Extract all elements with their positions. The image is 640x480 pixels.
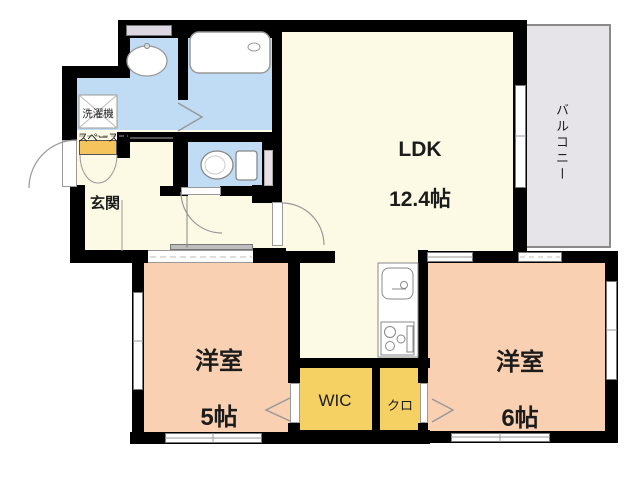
wall-top-ldk	[276, 20, 527, 32]
wall-toilet-bottom-left	[160, 186, 182, 196]
room5-sliding-door-opening	[148, 250, 253, 263]
laundry-space-label: 洗濯機 スペース	[72, 96, 124, 156]
room6-top-window-1	[427, 252, 473, 262]
bedroom5-name: 洋室	[159, 348, 279, 376]
laundry-line1: 洗濯機	[72, 108, 124, 120]
wall-wic-bottom	[288, 430, 430, 444]
toilet-cabinet-panel	[264, 150, 273, 186]
wall-wic-top	[288, 358, 430, 368]
room6-right-window	[606, 281, 617, 380]
ldk-size: 12.4帖	[350, 187, 490, 212]
bedroom6-size: 6帖	[460, 405, 580, 433]
bathroom-floor	[186, 28, 276, 138]
room6-top-window-2	[518, 252, 562, 262]
bedroom5-label: 洋室 5帖	[159, 320, 279, 460]
wall-bath-ldk	[272, 30, 282, 142]
ldk-label: LDK 12.4帖	[350, 112, 490, 237]
room5-sliding-door-leaf	[170, 244, 253, 250]
washroom-top-window	[126, 25, 172, 36]
bedroom6-name: 洋室	[460, 349, 580, 377]
toilet-door	[181, 187, 221, 195]
wic-label: WIC	[298, 391, 372, 411]
bedroom5-size: 5帖	[159, 404, 279, 432]
closet-label: クロ	[378, 395, 422, 414]
kitchen-nook-floor	[298, 250, 422, 362]
bedroom6-label: 洋室 6帖	[460, 321, 580, 461]
room5-left-window	[133, 292, 143, 390]
wall-wash-bath	[178, 38, 188, 100]
laundry-line2: スペース	[72, 132, 124, 144]
ldk-name: LDK	[350, 137, 490, 162]
toilet-floor	[186, 140, 266, 190]
ldk-balcony-window	[515, 85, 526, 188]
wall-wet-bottom	[117, 132, 282, 142]
ldk-door	[272, 202, 283, 246]
wall-kitchen-room6-upper	[418, 250, 428, 383]
genkan-label: 玄関	[80, 192, 130, 213]
balcony-label: バルコニー	[552, 103, 571, 183]
floor-plan: LDK 12.4帖 バルコニー 洗濯機 スペース 玄関 洋室 5帖 洋室 6帖 …	[0, 0, 640, 480]
